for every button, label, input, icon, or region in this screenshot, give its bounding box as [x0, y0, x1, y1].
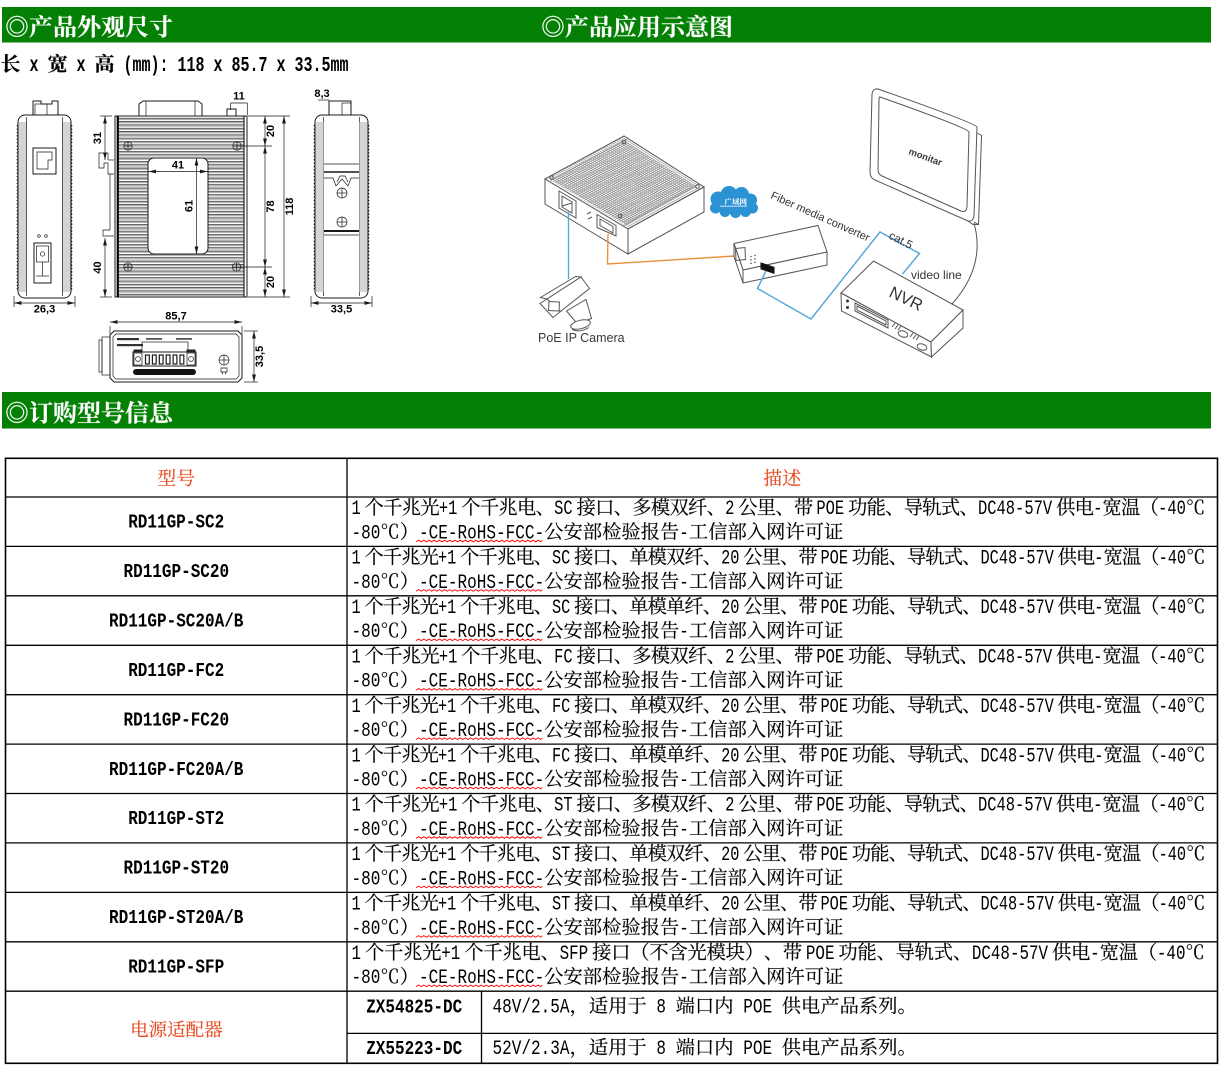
svg-text:-40: -40 — [1159, 548, 1187, 571]
svg-text:ST: ST — [554, 795, 573, 818]
svg-text:61: 61 — [184, 200, 196, 212]
svg-text:RD11GP-ST20: RD11GP-ST20 — [124, 858, 230, 880]
svg-text:-: - — [679, 868, 689, 891]
svg-text:-80: -80 — [352, 819, 381, 842]
svg-text:+1: +1 — [439, 498, 458, 521]
svg-text:-: - — [1094, 597, 1103, 620]
svg-text:FC: FC — [554, 647, 573, 670]
svg-text:-: - — [1094, 696, 1103, 719]
svg-text:11: 11 — [233, 91, 245, 103]
svg-text:x: x — [77, 54, 86, 78]
svg-text:+1: +1 — [439, 647, 458, 670]
svg-text:31: 31 — [92, 132, 104, 144]
svg-text:DC48-57V: DC48-57V — [972, 943, 1048, 966]
svg-text:ST: ST — [552, 844, 570, 867]
svg-text:POE: POE — [821, 745, 849, 768]
svg-text:+1: +1 — [438, 894, 456, 917]
svg-text:20: 20 — [721, 548, 739, 571]
svg-text:-80: -80 — [352, 967, 381, 990]
svg-text:DC48-57V: DC48-57V — [978, 647, 1052, 670]
svg-text:20: 20 — [721, 745, 739, 768]
svg-text:POE: POE — [821, 696, 849, 719]
svg-text:POE: POE — [743, 997, 772, 1020]
svg-text:DC48-57V: DC48-57V — [981, 745, 1054, 768]
svg-text:SFP: SFP — [560, 943, 589, 966]
svg-text:-40: -40 — [1158, 498, 1186, 521]
svg-text:8,3: 8,3 — [314, 88, 329, 100]
svg-text:118: 118 — [284, 198, 296, 216]
svg-text:RD11GP-FC20A/B: RD11GP-FC20A/B — [109, 759, 243, 781]
svg-text:DC48-57V: DC48-57V — [978, 795, 1052, 818]
svg-text:52V/2.3A: 52V/2.3A — [493, 1038, 570, 1061]
svg-text:+1: +1 — [439, 795, 458, 818]
svg-text:-80: -80 — [352, 918, 381, 941]
svg-text:-: - — [679, 522, 689, 545]
svg-text:POE: POE — [816, 647, 844, 670]
svg-text:-80: -80 — [352, 868, 381, 891]
svg-text:20: 20 — [721, 696, 739, 719]
svg-text:48V/2.5A: 48V/2.5A — [493, 997, 570, 1020]
svg-text:-: - — [1094, 745, 1103, 768]
svg-text:1: 1 — [352, 943, 362, 966]
svg-text:1: 1 — [352, 647, 361, 670]
svg-text:(mm): 118 x 85.7 x 33.5mm: (mm): 118 x 85.7 x 33.5mm — [124, 54, 349, 78]
svg-text:-40: -40 — [1159, 696, 1187, 719]
svg-text:DC48-57V: DC48-57V — [981, 844, 1054, 867]
svg-text:2: 2 — [725, 795, 734, 818]
svg-text:POE: POE — [743, 1038, 772, 1061]
svg-text:-: - — [679, 621, 689, 644]
svg-text:78: 78 — [265, 200, 277, 212]
svg-text:RD11GP-SFP: RD11GP-SFP — [128, 957, 224, 979]
svg-text:20: 20 — [721, 844, 739, 867]
svg-text:+1: +1 — [438, 548, 456, 571]
svg-text:FC: FC — [552, 696, 570, 719]
svg-text:POE: POE — [821, 548, 849, 571]
svg-text:-40: -40 — [1159, 745, 1187, 768]
svg-text:1: 1 — [352, 597, 361, 620]
svg-text:ZX54825-DC: ZX54825-DC — [366, 997, 462, 1019]
svg-text:1: 1 — [352, 548, 361, 571]
svg-text:1: 1 — [352, 696, 361, 719]
svg-text:-80: -80 — [352, 572, 381, 595]
svg-text:RD11GP-ST2: RD11GP-ST2 — [128, 808, 224, 830]
svg-text:2: 2 — [725, 647, 734, 670]
svg-text:41: 41 — [172, 160, 184, 172]
svg-text:PoE IP Camera: PoE IP Camera — [538, 331, 625, 345]
svg-text:POE: POE — [816, 498, 844, 521]
svg-text:26,3: 26,3 — [34, 304, 55, 316]
svg-text:-80: -80 — [352, 671, 381, 694]
svg-text:-40: -40 — [1159, 844, 1187, 867]
svg-text:x: x — [30, 54, 39, 78]
svg-text:-40: -40 — [1159, 894, 1187, 917]
svg-text:+1: +1 — [438, 844, 456, 867]
svg-text:-80: -80 — [352, 770, 381, 793]
svg-text:RD11GP-SC20: RD11GP-SC20 — [124, 561, 230, 583]
svg-text:40: 40 — [92, 261, 104, 273]
svg-text:-: - — [1094, 894, 1103, 917]
svg-text:-: - — [679, 671, 689, 694]
svg-text:8: 8 — [656, 1038, 666, 1061]
svg-text:-: - — [679, 819, 689, 842]
svg-text:RD11GP-SC20A/B: RD11GP-SC20A/B — [109, 611, 243, 633]
svg-text:-: - — [1093, 647, 1102, 670]
svg-text:-: - — [1094, 548, 1103, 571]
svg-text:33,5: 33,5 — [254, 346, 266, 367]
svg-text:-40: -40 — [1159, 597, 1187, 620]
svg-text:DC48-57V: DC48-57V — [981, 597, 1054, 620]
svg-text:+1: +1 — [438, 696, 456, 719]
svg-text:POE: POE — [821, 894, 849, 917]
svg-text:20: 20 — [265, 125, 277, 137]
svg-text:POE: POE — [806, 943, 835, 966]
svg-text:-: - — [679, 918, 689, 941]
svg-text:20: 20 — [265, 276, 277, 288]
svg-text:20: 20 — [721, 597, 739, 620]
svg-text:-: - — [679, 720, 689, 743]
svg-text:SC: SC — [552, 597, 570, 620]
svg-text:+1: +1 — [438, 745, 456, 768]
svg-text:FC: FC — [552, 745, 570, 768]
svg-text:-40: -40 — [1158, 795, 1186, 818]
svg-text:-: - — [1093, 795, 1102, 818]
svg-text:20: 20 — [721, 894, 739, 917]
svg-text:1: 1 — [352, 795, 361, 818]
svg-text:POE: POE — [821, 844, 849, 867]
svg-text:1: 1 — [352, 844, 361, 867]
svg-text:RD11GP-FC20: RD11GP-FC20 — [124, 709, 230, 731]
svg-text:-: - — [679, 572, 689, 595]
svg-text:+1: +1 — [438, 597, 456, 620]
svg-text:-: - — [1094, 844, 1103, 867]
svg-text:POE: POE — [816, 795, 844, 818]
svg-text:-: - — [1090, 943, 1100, 966]
svg-text:2: 2 — [725, 498, 734, 521]
svg-text:-: - — [679, 770, 689, 793]
svg-text:RD11GP-SC2: RD11GP-SC2 — [128, 512, 224, 534]
svg-text:video line: video line — [911, 268, 962, 282]
svg-text:-80: -80 — [352, 621, 381, 644]
svg-text:DC48-57V: DC48-57V — [981, 548, 1054, 571]
svg-text:1: 1 — [352, 498, 361, 521]
svg-text:-: - — [1093, 498, 1102, 521]
svg-text:DC48-57V: DC48-57V — [981, 696, 1054, 719]
svg-text:ST: ST — [552, 894, 570, 917]
svg-text:33,5: 33,5 — [331, 304, 352, 316]
svg-text:8: 8 — [656, 997, 666, 1020]
svg-text:ZX55223-DC: ZX55223-DC — [366, 1038, 462, 1060]
svg-text:RD11GP-FC2: RD11GP-FC2 — [128, 660, 224, 682]
svg-text:1: 1 — [352, 745, 361, 768]
svg-text:POE: POE — [821, 597, 849, 620]
svg-text:SC: SC — [554, 498, 573, 521]
svg-text:1: 1 — [352, 894, 361, 917]
svg-text:RD11GP-ST20A/B: RD11GP-ST20A/B — [109, 907, 243, 929]
svg-text:-40: -40 — [1157, 943, 1186, 966]
svg-text:SC: SC — [552, 548, 570, 571]
svg-text:85,7: 85,7 — [165, 311, 186, 323]
svg-text:+1: +1 — [441, 943, 460, 966]
svg-text:-: - — [679, 967, 689, 990]
svg-text:-80: -80 — [352, 720, 381, 743]
svg-text:-80: -80 — [352, 522, 381, 545]
svg-text:DC48-57V: DC48-57V — [981, 894, 1054, 917]
svg-text:DC48-57V: DC48-57V — [978, 498, 1052, 521]
svg-text:-40: -40 — [1158, 647, 1186, 670]
